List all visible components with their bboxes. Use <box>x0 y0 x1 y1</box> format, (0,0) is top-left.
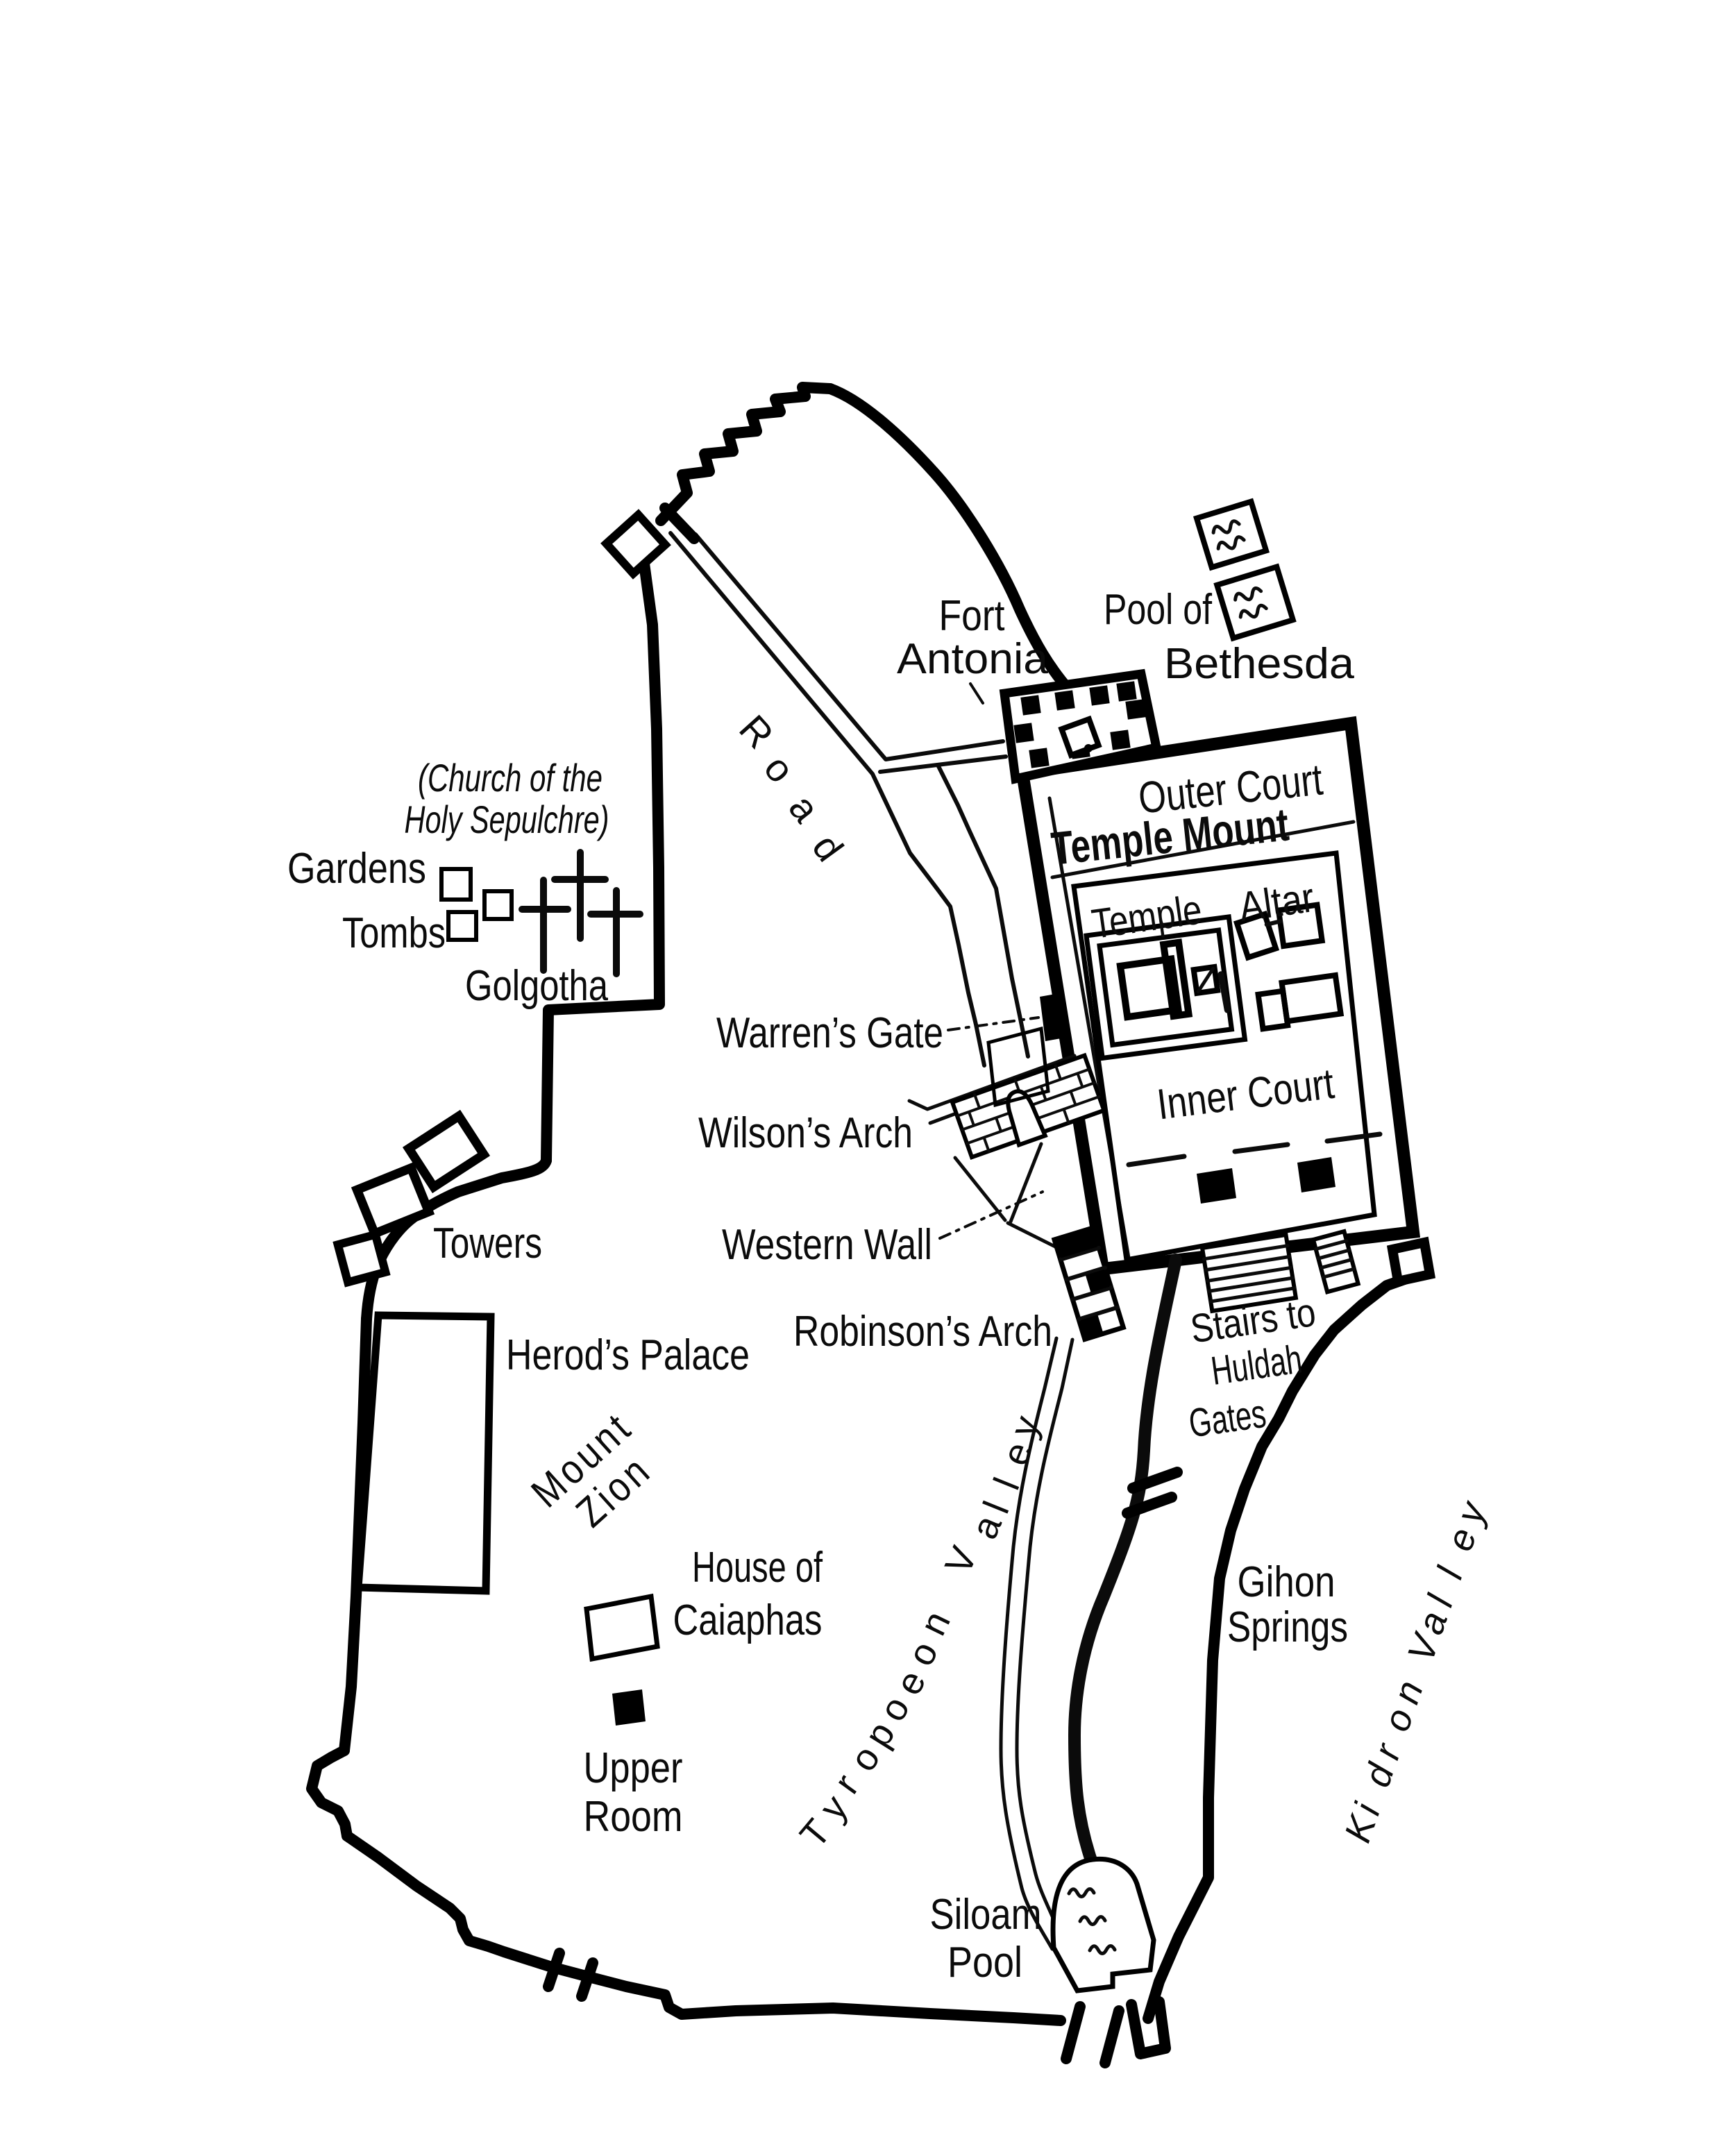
svg-text:Herod’s Palace: Herod’s Palace <box>506 1331 750 1379</box>
svg-text:Pool of: Pool of <box>1104 586 1213 634</box>
svg-text:Tombs: Tombs <box>342 909 446 957</box>
svg-text:Holy Sepulchre): Holy Sepulchre) <box>405 798 609 841</box>
svg-text:Fort: Fort <box>939 592 1005 640</box>
svg-text:Upper: Upper <box>584 1744 683 1792</box>
svg-text:Robinson’s Arch: Robinson’s Arch <box>793 1308 1052 1356</box>
svg-text:Warren’s Gate: Warren’s Gate <box>716 1009 943 1057</box>
svg-text:Golgotha: Golgotha <box>465 962 608 1010</box>
svg-text:Antonia: Antonia <box>897 635 1049 683</box>
svg-text:Gihon: Gihon <box>1238 1558 1335 1606</box>
svg-text:Bethesda: Bethesda <box>1164 640 1355 688</box>
svg-text:Gardens: Gardens <box>287 845 426 893</box>
svg-text:House of: House of <box>692 1544 823 1592</box>
svg-text:Pool: Pool <box>947 1939 1022 1987</box>
svg-text:Siloam: Siloam <box>930 1891 1042 1939</box>
svg-text:Towers: Towers <box>433 1220 542 1267</box>
svg-text:Western Wall: Western Wall <box>722 1221 932 1269</box>
svg-text:Room: Room <box>584 1793 683 1841</box>
svg-text:Caiaphas: Caiaphas <box>673 1596 823 1644</box>
svg-text:Wilson’s Arch: Wilson’s Arch <box>698 1109 913 1157</box>
svg-text:Springs: Springs <box>1227 1603 1348 1651</box>
svg-text:(Church of the: (Church of the <box>418 756 602 800</box>
